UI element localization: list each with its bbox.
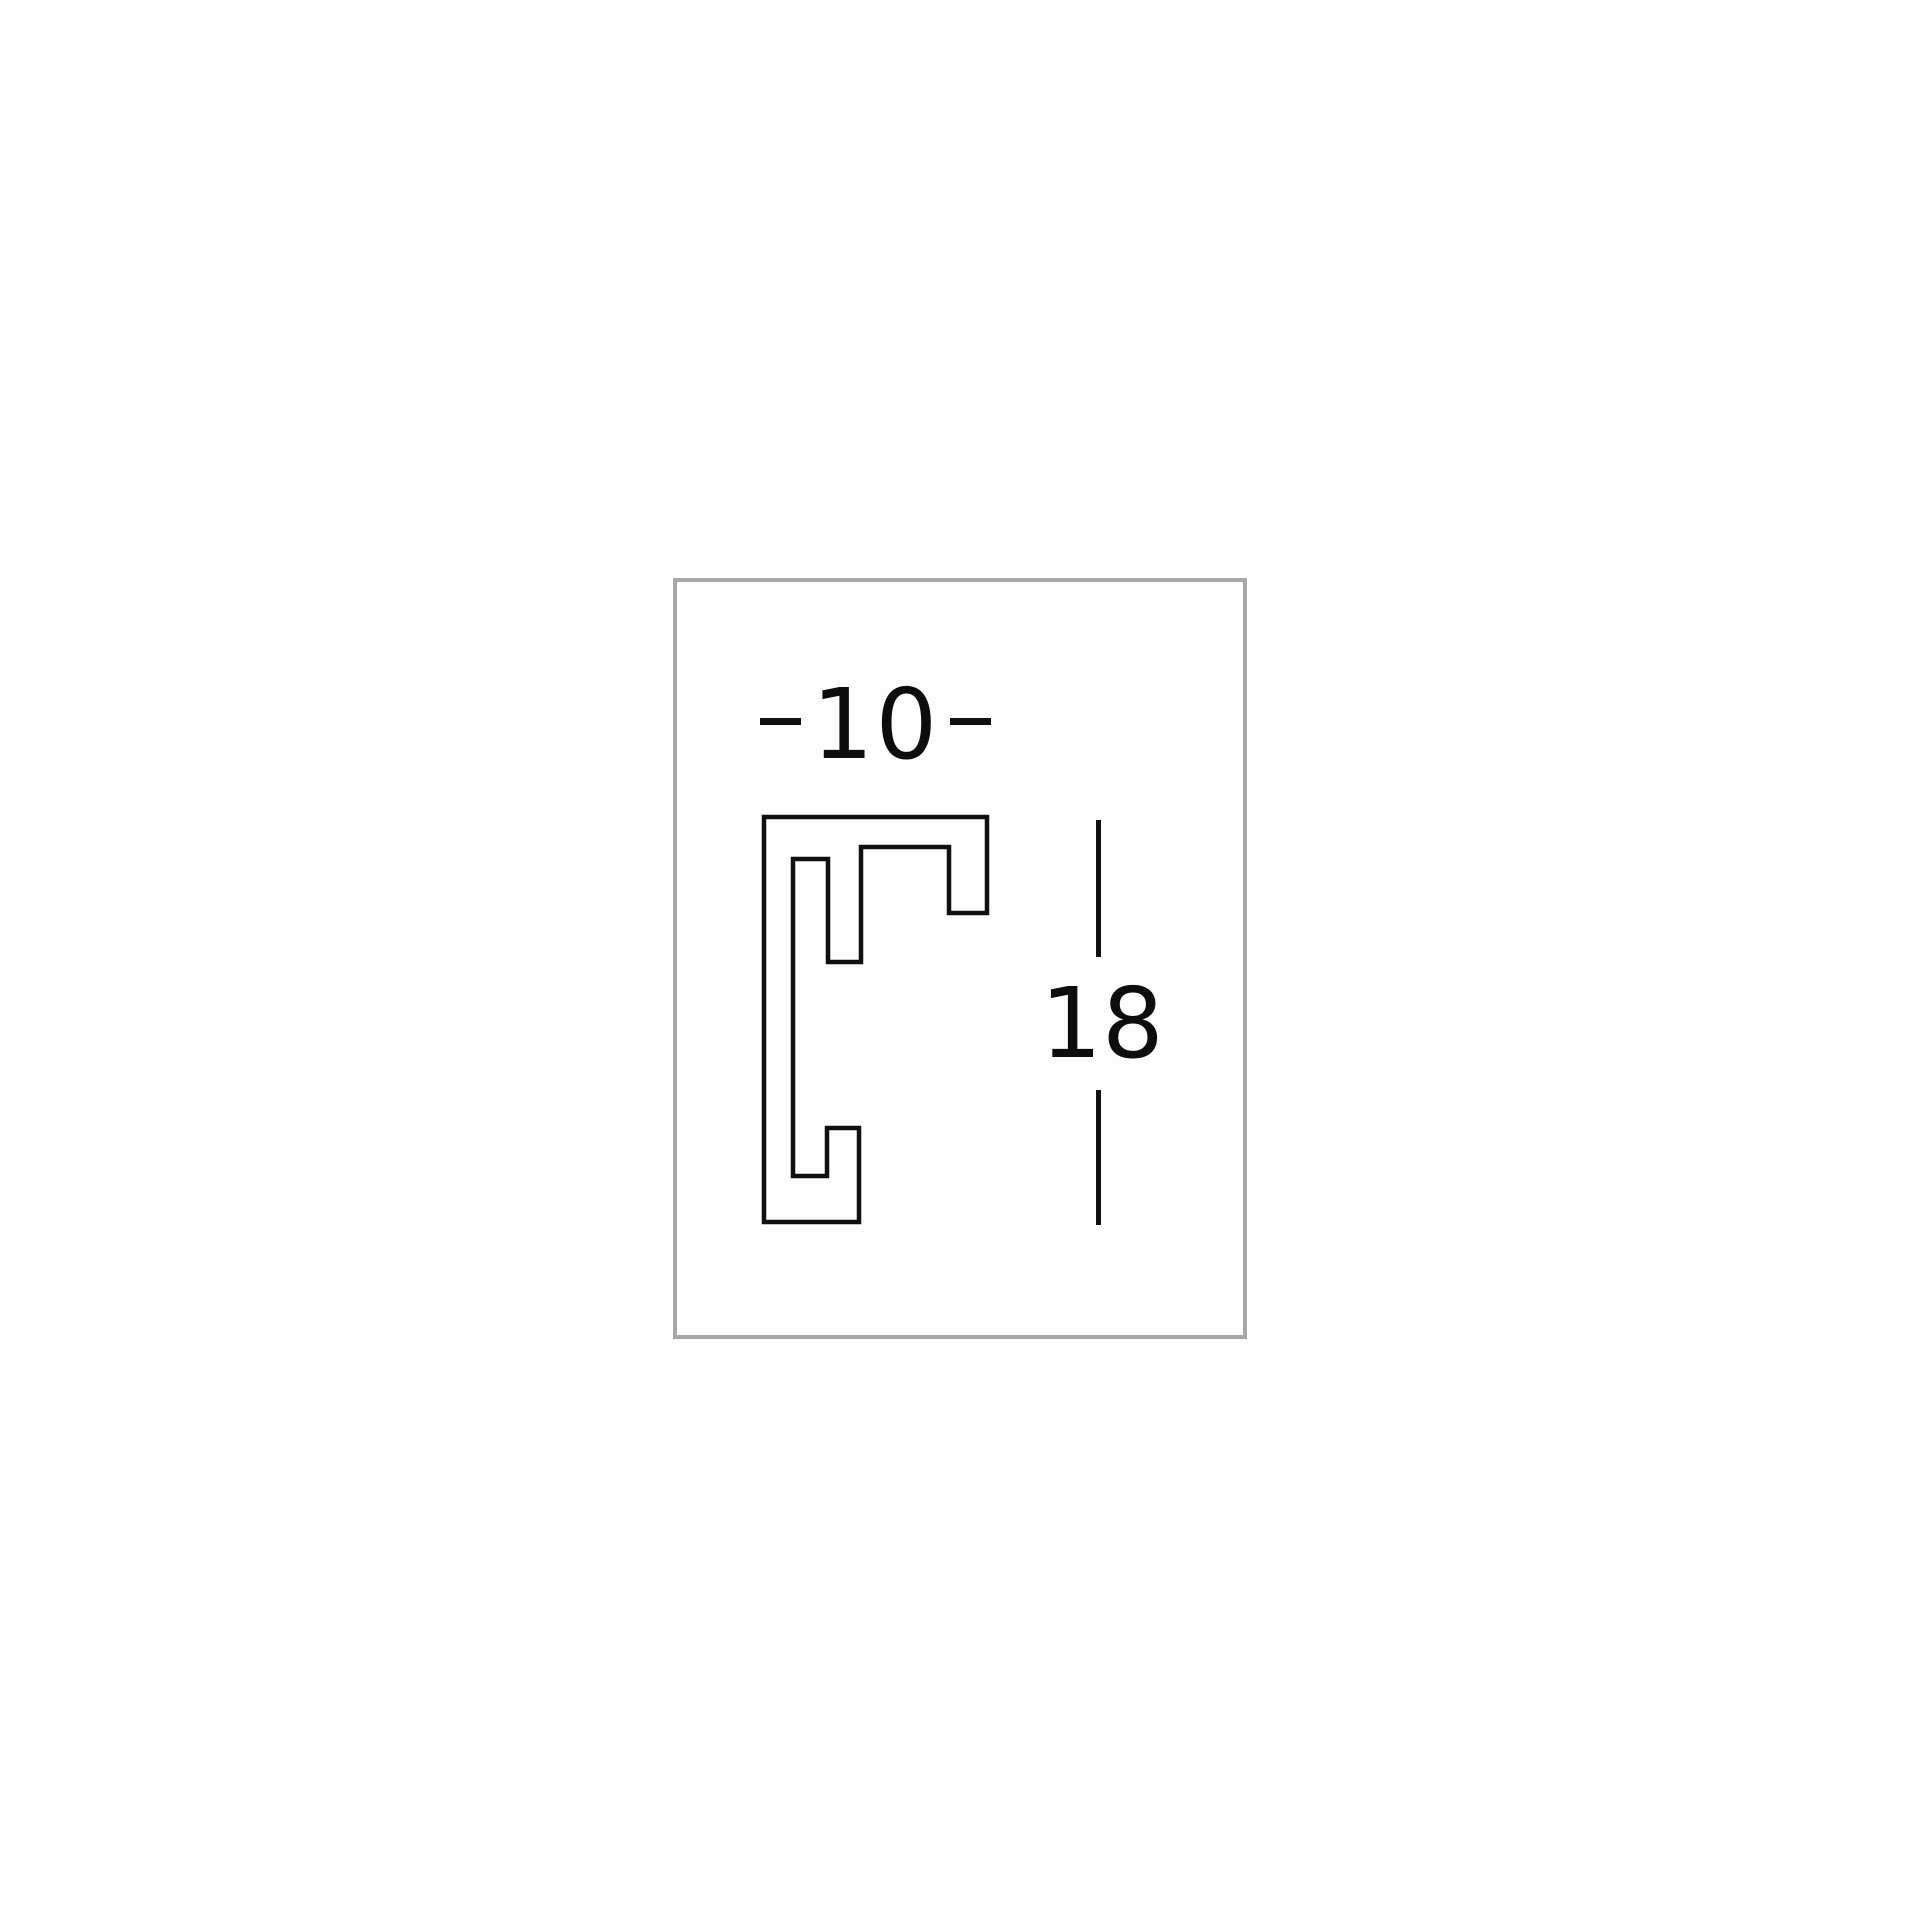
height-dimension-line-lower — [1096, 1090, 1101, 1225]
moulding-profile-cross-section — [760, 813, 991, 1226]
width-dimension-label: 10 — [812, 690, 939, 760]
width-dimension-tick-right — [950, 718, 991, 725]
height-dimension-label: 18 — [1027, 989, 1177, 1059]
page-background: 10 18 — [0, 0, 1920, 1920]
profile-diagram-panel: 10 18 — [673, 578, 1247, 1339]
width-dimension-tick-left — [760, 718, 801, 725]
profile-outline-shape — [764, 817, 987, 1222]
height-dimension-line-upper — [1096, 820, 1101, 957]
width-dimension: 10 — [760, 690, 991, 760]
